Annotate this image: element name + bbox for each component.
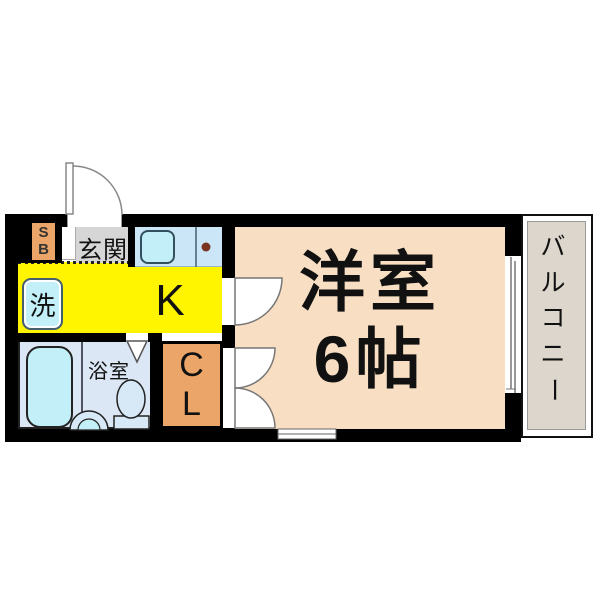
closet-letter-l: L	[182, 385, 201, 424]
balcony-char-3: コ	[540, 305, 565, 333]
shoe-box-letter-s: S	[38, 225, 48, 242]
entrance-door-arc	[73, 166, 122, 215]
balcony-char-5: ー	[539, 377, 567, 402]
washing-machine-label: 洗	[29, 286, 55, 323]
wall-right-upper	[505, 214, 521, 256]
western-room-size: 6帖	[250, 321, 490, 398]
bathtub-icon	[26, 346, 73, 428]
western-room-name: 洋室	[250, 244, 490, 321]
closet-letter-c: C	[179, 346, 204, 385]
closet-door-opening	[222, 348, 235, 428]
balcony-char-2: ル	[540, 270, 565, 298]
bathroom-door-opening	[126, 333, 148, 342]
balcony-char-4: ニ	[540, 341, 565, 369]
shoe-box-letter-b: B	[38, 242, 49, 259]
entrance-door-opening	[67, 214, 122, 227]
wall-left	[5, 214, 18, 442]
kitchen-label: K	[135, 276, 205, 326]
shoe-box: S B	[30, 221, 57, 262]
western-room-label: 洋室 6帖	[250, 244, 490, 397]
wall-bottom	[5, 429, 521, 442]
balcony-char-1: バ	[540, 234, 565, 262]
balcony-label: バ ル コ ニ ー	[538, 234, 568, 404]
wall-right-lower	[505, 393, 521, 442]
closet-box: C L	[160, 341, 223, 429]
washing-machine-box: 洗	[22, 278, 63, 330]
window-right-opening	[505, 256, 521, 393]
entrance-label: 玄関	[74, 230, 132, 265]
entrance-door-leaf	[66, 163, 73, 214]
bathroom-label: 浴室	[80, 355, 138, 384]
kitchen-counter	[135, 227, 223, 267]
floor-plan: S B C L 洗 玄関 K	[0, 0, 600, 600]
kitchen-door-opening	[222, 278, 235, 325]
wall-top-b	[122, 214, 521, 227]
